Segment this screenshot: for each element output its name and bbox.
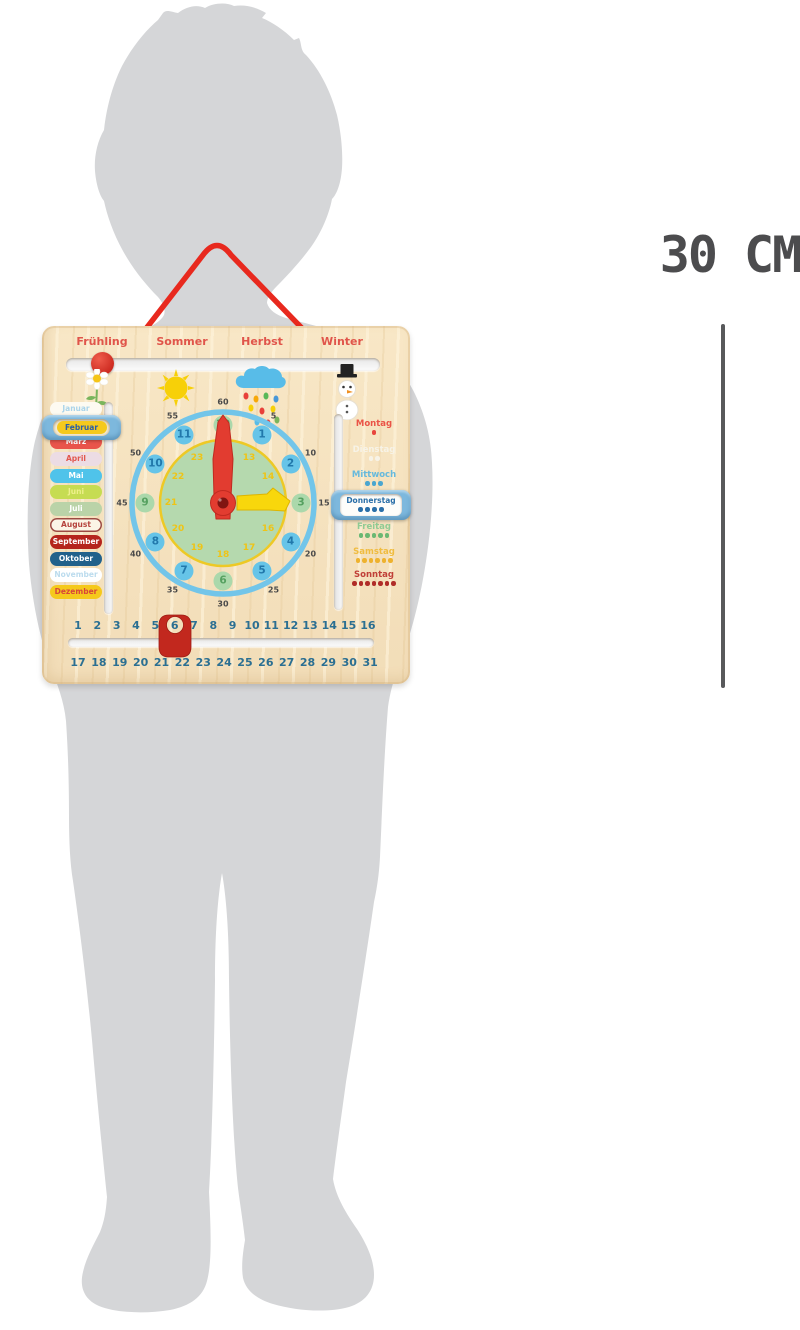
product-image: 30 CM FrühlingSommerHerbstWinter <box>0 0 800 1330</box>
day-label-7: Sonntag <box>338 570 410 580</box>
day-label-3: Mittwoch <box>338 470 410 480</box>
date-26: 26 <box>258 656 273 669</box>
date-11: 11 <box>264 619 279 632</box>
selected-day-dot <box>372 507 377 512</box>
date-16: 16 <box>360 619 375 632</box>
day-dot <box>385 533 390 538</box>
month-selector-window: Februar <box>53 419 110 436</box>
day-dot <box>369 558 374 563</box>
date-selector-handle[interactable] <box>157 613 193 659</box>
day-dot <box>385 581 390 586</box>
date-20: 20 <box>133 656 148 669</box>
month-selector-handle[interactable]: Februar <box>42 415 121 440</box>
date-13: 13 <box>302 619 317 632</box>
calendar-board: FrühlingSommerHerbstWinter <box>42 326 410 684</box>
season-label-3: Herbst <box>241 335 283 348</box>
snowman-icon <box>329 362 365 420</box>
hub-highlight <box>218 498 221 501</box>
date-10: 10 <box>244 619 259 632</box>
day-dot <box>378 481 383 486</box>
month-pill-11: November <box>50 568 102 582</box>
date-28: 28 <box>300 656 315 669</box>
date-1: 1 <box>74 619 82 632</box>
month-pill-12: Dezember <box>50 585 102 599</box>
day-dots-3 <box>338 481 410 486</box>
clock-hands <box>118 398 328 608</box>
day-dot <box>372 430 377 435</box>
date-slider-track <box>68 638 374 647</box>
day-dot <box>375 558 380 563</box>
date-25: 25 <box>237 656 252 669</box>
selected-day-dots <box>340 507 402 512</box>
date-9: 9 <box>229 619 237 632</box>
day-dot <box>372 481 377 486</box>
month-pill-5: Mai <box>50 469 102 483</box>
month-pill-6: Juni <box>50 485 102 499</box>
minute-hand-yellow[interactable] <box>237 488 290 511</box>
date-30: 30 <box>342 656 357 669</box>
date-23: 23 <box>196 656 211 669</box>
day-dot <box>388 558 393 563</box>
day-dots-6 <box>338 558 410 563</box>
size-label: 30 CM <box>655 226 800 284</box>
day-dot <box>372 581 377 586</box>
day-dot <box>362 558 367 563</box>
date-29: 29 <box>321 656 336 669</box>
date-18: 18 <box>91 656 106 669</box>
day-dot <box>365 581 370 586</box>
date-24: 24 <box>216 656 231 669</box>
day-dot <box>352 581 357 586</box>
learning-clock: 5101520253035404550556012345678910111213… <box>118 398 328 608</box>
date-27: 27 <box>279 656 294 669</box>
day-selector-window: Donnerstag <box>340 494 402 516</box>
day-label-6: Samstag <box>338 547 410 557</box>
measure-line <box>721 324 725 688</box>
date-12: 12 <box>283 619 298 632</box>
date-31: 31 <box>363 656 378 669</box>
date-14: 14 <box>322 619 337 632</box>
day-dots-1 <box>338 430 410 435</box>
selected-day: Donnerstag <box>340 495 402 506</box>
season-label-2: Sommer <box>156 335 207 348</box>
selected-day-dot <box>379 507 384 512</box>
selected-month: Februar <box>57 421 107 434</box>
month-pill-9: September <box>50 535 102 549</box>
month-pill-1: Januar <box>50 402 102 416</box>
day-dot <box>365 533 370 538</box>
day-dots-7 <box>338 581 410 586</box>
day-selector-handle[interactable]: Donnerstag <box>331 490 411 520</box>
date-15: 15 <box>341 619 356 632</box>
date-4: 4 <box>132 619 140 632</box>
season-label-4: Winter <box>321 335 363 348</box>
day-dot <box>378 581 383 586</box>
day-dot <box>356 558 361 563</box>
month-pill-4: April <box>50 452 102 466</box>
day-dot <box>365 481 370 486</box>
date-8: 8 <box>209 619 217 632</box>
day-dot <box>359 533 364 538</box>
day-dot <box>391 581 396 586</box>
selected-day-dot <box>358 507 363 512</box>
day-label-2: Dienstag <box>338 445 410 455</box>
day-dot <box>375 456 380 461</box>
day-dot <box>359 581 364 586</box>
date-3: 3 <box>113 619 121 632</box>
day-label-5: Freitag <box>338 522 410 532</box>
month-pill-10: Oktober <box>50 552 102 566</box>
day-dot <box>382 558 387 563</box>
date-19: 19 <box>112 656 127 669</box>
day-dots-2 <box>338 456 410 461</box>
month-pill-7: Juli <box>50 502 102 516</box>
day-dot <box>369 456 374 461</box>
day-dot <box>378 533 383 538</box>
day-label-1: Montag <box>338 419 410 429</box>
day-dots-5 <box>338 533 410 538</box>
date-2: 2 <box>94 619 102 632</box>
day-dot <box>372 533 377 538</box>
month-pill-8: August <box>50 518 102 532</box>
selected-day-dot <box>365 507 370 512</box>
season-label-1: Frühling <box>76 335 127 348</box>
date-17: 17 <box>70 656 85 669</box>
